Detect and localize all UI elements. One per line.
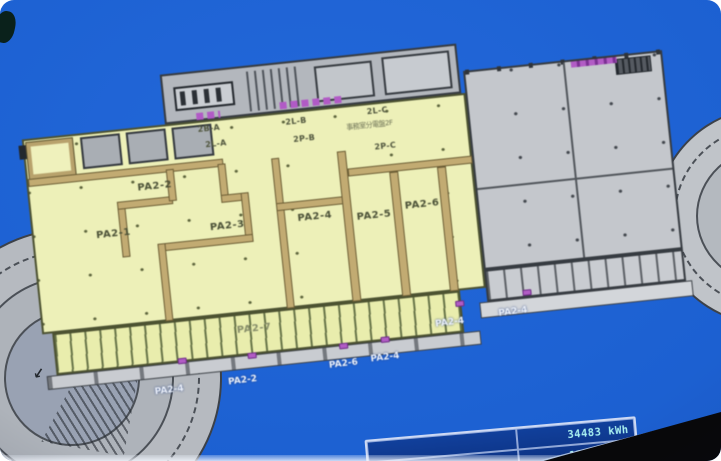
- panel-marker[interactable]: [339, 343, 349, 350]
- zone-2ba-2la[interactable]: 2B-A 2L-A: [193, 118, 246, 159]
- equipment-box: [173, 81, 235, 111]
- corner-room: [26, 138, 76, 179]
- monitor-photo: ↙: [0, 0, 721, 461]
- panel-marker[interactable]: [522, 289, 532, 296]
- zone-label: PA2-7: [236, 321, 272, 336]
- zone-pa2-4[interactable]: PA2-4: [285, 205, 351, 306]
- room-label: 2L-C: [366, 105, 388, 116]
- screen-edge-glint: [0, 455, 560, 461]
- feeder-label: PA2-4: [370, 351, 400, 364]
- zone-label: PA2-6: [404, 197, 440, 212]
- service-room: [80, 133, 123, 169]
- zone-label: PA2-2: [137, 179, 173, 194]
- roof-room: [381, 50, 453, 95]
- zone-label: PA2-4: [297, 210, 333, 225]
- office-panel-label: 事務室分電盤2F: [346, 114, 438, 132]
- feeder-label: PA2-4: [154, 384, 184, 397]
- stair-core: [615, 55, 652, 75]
- service-room: [126, 128, 169, 164]
- section-divider: [563, 62, 585, 257]
- floor-plan: PA2-1 PA2-2 PA2-3 PA2-4 PA2-5 PA2-6 PA2-…: [11, 21, 702, 418]
- zone-2lb-2pb[interactable]: 2L-B 2P-B: [277, 109, 337, 174]
- room-label: 2P-C: [374, 140, 397, 151]
- room-label: 2L-B: [285, 116, 307, 127]
- panel-marker[interactable]: [247, 352, 257, 359]
- zone-label: PA2-1: [96, 227, 132, 242]
- feeder-label: PA2-2: [228, 374, 258, 387]
- photo-artifact: [0, 9, 18, 44]
- feeder-label: PA2-6: [328, 357, 358, 370]
- room-label: 2P-B: [293, 133, 316, 144]
- zone-label: PA2-5: [356, 208, 392, 223]
- feeder-label: PA2-4: [498, 305, 528, 318]
- unmetered-section: [463, 50, 683, 270]
- room-label: 2B-A: [197, 123, 220, 134]
- room-label: 2L-A: [205, 138, 227, 149]
- zone-label: PA2-3: [209, 219, 245, 234]
- zone-pa2-3[interactable]: PA2-3: [163, 194, 284, 319]
